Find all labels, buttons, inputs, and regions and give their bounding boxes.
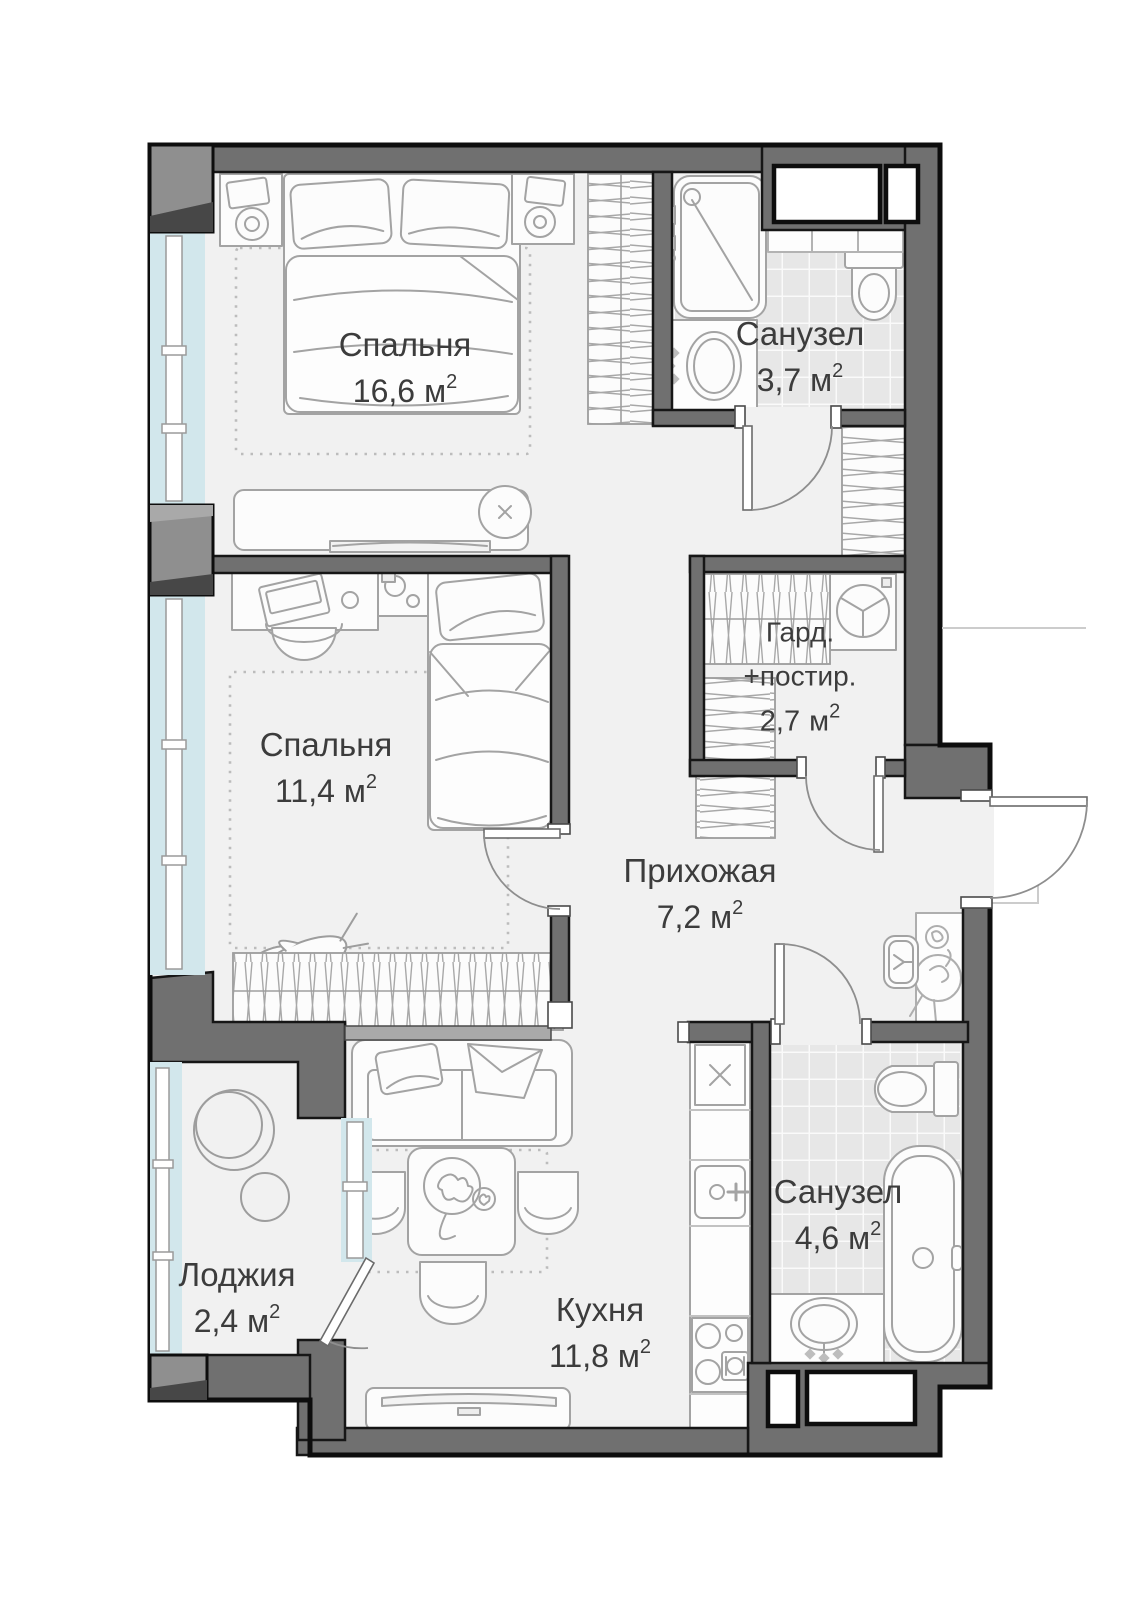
floor-plan-page: Спальня 16,6м2 Санузел 3,7м2 Гард. +пост… (0, 0, 1137, 1600)
bedside-unit-bedroom-2 (378, 568, 428, 616)
single-bed (428, 566, 552, 830)
wall-bedroom-2-bottom-light (345, 1026, 551, 1040)
window-bedroom-2 (150, 593, 205, 975)
room-label-wardrobe-laundry: Гард. +постир. 2,7м2 (744, 611, 857, 746)
pillar-top-left (150, 145, 213, 232)
room-area: 16,6м2 (339, 368, 472, 415)
wall-bedroom-2-right-upper (551, 556, 569, 833)
room-label-bedroom-1: Спальня 16,6м2 (339, 321, 472, 415)
door-leaf-bathroom-2 (775, 944, 784, 1024)
door-arc-entrance (990, 801, 1087, 898)
room-label-hallway: Прихожая 7,2м2 (624, 847, 777, 941)
room-area: 11,8м2 (549, 1333, 651, 1380)
room-label-loggia: Лоджия 2,4м2 (179, 1251, 296, 1345)
nightstand-left (220, 174, 282, 246)
toilet-bathroom-2 (875, 1062, 958, 1116)
sideboard-bedroom-1 (234, 486, 531, 552)
wall-bathroom-1-left (653, 172, 672, 425)
wardrobe-bedroom-2 (233, 953, 563, 1030)
entry-washbasin (884, 936, 918, 988)
wall-right-upper (905, 145, 940, 745)
wall-right-lower (963, 898, 990, 1387)
window-bedroom-1 (150, 230, 205, 507)
nightstand-right (512, 174, 574, 244)
tv-console (366, 1388, 570, 1430)
room-area: 4,6м2 (774, 1215, 903, 1262)
room-label-bathroom-2: Санузел 4,6м2 (774, 1168, 903, 1262)
pillar-bottom-left (150, 1355, 207, 1400)
room-name: Гард. (744, 611, 857, 655)
door-leaf-bedroom-2 (484, 829, 560, 838)
door-leaf-bathroom-1 (743, 426, 752, 510)
room-area: 7,2м2 (624, 894, 777, 941)
room-name: +постир. (744, 655, 857, 699)
room-name: Лоджия (179, 1251, 296, 1298)
room-name: Кухня (549, 1286, 651, 1333)
room-name: Санузел (736, 310, 865, 357)
room-area: 3,7м2 (736, 357, 865, 404)
room-label-kitchen: Кухня 11,8м2 (549, 1286, 651, 1380)
wall-bottom (297, 1428, 748, 1455)
kitchen-counter (690, 1040, 750, 1428)
sink-bathroom-2 (770, 1294, 884, 1364)
wall-bedrooms-divider (205, 556, 567, 573)
dining-chair-bottom (420, 1262, 486, 1324)
wardrobe-corridor (842, 427, 905, 557)
room-area: 11,4м2 (260, 768, 393, 815)
door-leaf-gard (874, 776, 883, 852)
stove (692, 1318, 748, 1392)
wall-bathroom-2-left (752, 1022, 770, 1363)
room-label-bathroom-1: Санузел 3,7м2 (736, 310, 865, 404)
room-name: Прихожая (624, 847, 777, 894)
wardrobe-bedroom-1-closet (588, 174, 655, 424)
wall-gard-top (690, 556, 905, 572)
window-loggia-outer (150, 1062, 182, 1357)
room-area: 2,7м2 (744, 699, 857, 746)
wall-gard-left (690, 556, 704, 776)
sofa (352, 1040, 572, 1146)
room-label-bedroom-2: Спальня 11,4м2 (260, 721, 393, 815)
room-name: Спальня (260, 721, 393, 768)
shower (666, 176, 766, 318)
pillar-mid-left (150, 505, 213, 595)
door-leaf-entrance (990, 797, 1087, 806)
dining-chair-right (518, 1172, 578, 1234)
bathroom-1-shelf (768, 228, 903, 252)
room-area: 2,4м2 (179, 1298, 296, 1345)
room-name: Спальня (339, 321, 472, 368)
room-name: Санузел (774, 1168, 903, 1215)
window-loggia-kitchen (341, 1118, 372, 1262)
